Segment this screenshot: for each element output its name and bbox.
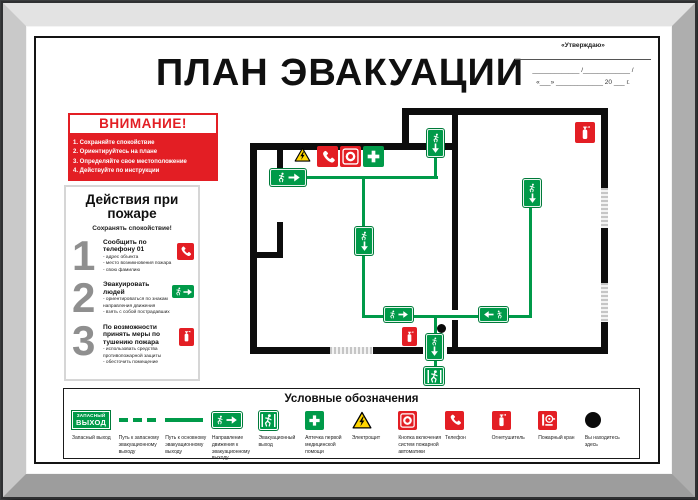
emergency-exit-sign: ЗАПАСНЫЙ ВЫХОД	[72, 411, 110, 429]
legend-item: Вы находитесь здесь	[585, 408, 631, 462]
legend-item: Огнетушитель	[492, 408, 538, 462]
approval-title: «Утверждаю»	[513, 42, 653, 49]
legend-item: Пожарный кран	[538, 408, 584, 462]
wall-divider	[452, 320, 458, 354]
phone-icon	[317, 146, 338, 167]
step-list-item: - использовать средства противопожарной …	[103, 347, 177, 360]
wall	[402, 108, 409, 150]
signature-line: _____________ /_____________ /	[513, 67, 653, 74]
evacuation-route	[529, 203, 532, 318]
fire-hydrant-icon	[538, 411, 557, 430]
legend-label: Запасный выход	[72, 435, 111, 442]
action-step-3: 3 По возможности принять меры по тушению…	[72, 324, 194, 367]
step-list-item: - обесточить помещение	[103, 360, 177, 366]
fire-alarm-button-icon	[398, 411, 417, 430]
window	[330, 347, 373, 354]
legend-item: Эвакуационный выход	[259, 408, 305, 462]
exit-down-sign	[426, 334, 443, 360]
step-list: - использовать средства противопожарной …	[103, 347, 177, 366]
step-list: - ориентироваться по знакам направления …	[103, 297, 170, 316]
exit-down-sign	[355, 227, 373, 255]
legend-label: Огнетушитель	[492, 435, 525, 442]
attention-list: 1. Сохраняйте спокойствие 2. Ориентируйт…	[68, 135, 218, 181]
window	[601, 188, 608, 228]
attention-box: ВНИМАНИЕ! 1. Сохраняйте спокойствие 2. О…	[68, 113, 218, 181]
legend-item: Электрощит	[352, 408, 398, 462]
floor-plan	[240, 100, 612, 400]
you-are-here-dot	[585, 412, 601, 428]
step-list: - адрес объекта - место возникновения по…	[103, 255, 175, 274]
exit-down-sign	[427, 129, 444, 157]
first-aid-icon	[305, 411, 324, 430]
legend-title: Условные обозначения	[64, 393, 639, 405]
you-are-here-dot	[437, 324, 446, 333]
date-line: «___» _____________ 20 ___ г.	[513, 79, 653, 86]
legend-item: Путь к основному эвакуационному выходу	[165, 408, 211, 462]
legend-label: Кнопка включения систем пожарной автомат…	[398, 435, 444, 455]
fire-extinguisher-icon	[402, 327, 417, 346]
legend-label: Путь к запасному эвакуационному выходу	[119, 435, 165, 455]
fire-actions-box: Действия при пожаре Сохранять спокойстви…	[64, 185, 200, 381]
page-title: ПЛАН ЭВАКУАЦИИ	[120, 52, 560, 95]
legend-label: Эвакуационный выход	[259, 435, 305, 449]
step-number: 1	[72, 239, 102, 273]
legend-label: Электрощит	[352, 435, 380, 442]
actions-title: Действия при пожаре	[66, 193, 198, 221]
step-list-item: - свою фамилию	[103, 268, 175, 274]
exit-direction-right-sign	[384, 307, 413, 322]
legend-label: Вы находитесь здесь	[585, 435, 631, 449]
legend-label: Пожарный кран	[538, 435, 574, 442]
exit-sign-line2: ВЫХОД	[76, 419, 106, 427]
exit-direction-left-sign	[479, 307, 508, 322]
exit-direction-icon	[172, 285, 194, 298]
electric-panel-icon	[352, 411, 372, 429]
phone-icon	[445, 411, 464, 430]
legend-label: Путь к основному эвакуационному выходу	[165, 435, 211, 455]
legend-box: Условные обозначения ЗАПАСНЫЙ ВЫХОД Запа…	[63, 388, 640, 459]
step-heading: Эвакуировать людей	[103, 281, 170, 296]
electric-panel-icon	[294, 147, 311, 162]
legend-item: Направление движения к эвакуационному вы…	[212, 408, 258, 462]
legend-label: Аптечка первой медицинской помощи	[305, 435, 351, 455]
step-list-item: - взять с собой пострадавших	[103, 310, 170, 316]
legend-item: ЗАПАСНЫЙ ВЫХОД Запасный выход	[72, 408, 118, 462]
step-list-item: - ориентироваться по знакам направления …	[103, 297, 170, 310]
signature-rule	[515, 54, 651, 60]
step-heading: По возможности принять меры по тушению п…	[103, 324, 177, 347]
fire-extinguisher-icon	[179, 328, 194, 346]
legend-row: ЗАПАСНЫЙ ВЫХОД Запасный выход Путь к зап…	[64, 405, 639, 462]
legend-item: Кнопка включения систем пожарной автомат…	[398, 408, 444, 462]
step-number: 3	[72, 324, 102, 358]
step-number: 2	[72, 281, 102, 315]
actions-subtitle: Сохранять спокойствие!	[66, 225, 198, 232]
wall	[402, 108, 608, 115]
attention-title: ВНИМАНИЕ!	[68, 113, 218, 135]
attention-item: 3. Определяйте свое местоположение	[73, 158, 213, 167]
emergency-exit-sign	[424, 367, 444, 385]
action-step-2: 2 Эвакуировать людей - ориентироваться п…	[72, 281, 194, 317]
exit-direction-right-sign	[270, 169, 306, 186]
evacuation-plan-poster: ПЛАН ЭВАКУАЦИИ «Утверждаю» _____________…	[34, 36, 660, 464]
wall	[250, 143, 257, 354]
fire-extinguisher-icon	[575, 122, 595, 143]
legend-item: Путь к запасному эвакуационному выходу	[119, 408, 165, 462]
step-heading: Сообщить по телефону 01	[103, 239, 175, 254]
first-aid-icon	[363, 146, 384, 167]
step-list-item: - место возникновения пожара	[103, 261, 175, 267]
attention-item: 1. Сохраняйте спокойствие	[73, 139, 213, 148]
wall-small-room	[250, 252, 283, 258]
attention-item: 2. Ориентируйтесь на плане	[73, 148, 213, 157]
exit-direction-sign	[212, 412, 242, 428]
approval-block: «Утверждаю» _____________ /_____________…	[513, 42, 653, 91]
window	[601, 283, 608, 322]
exit-down-sign	[523, 179, 541, 207]
legend-label: Телефон	[445, 435, 466, 442]
wall-divider	[452, 112, 458, 310]
solid-route-line	[165, 418, 203, 422]
evacuation-route	[434, 155, 437, 179]
legend-item: Аптечка первой медицинской помощи	[305, 408, 351, 462]
legend-item: Телефон	[445, 408, 491, 462]
dashed-route-line	[119, 418, 157, 422]
phone-icon	[177, 243, 194, 260]
legend-label: Направление движения к эвакуационному вы…	[212, 435, 258, 462]
action-step-1: 1 Сообщить по телефону 01 - адрес объект…	[72, 239, 194, 275]
evacuation-exit-sign	[259, 411, 278, 430]
fire-alarm-button-icon	[340, 146, 361, 167]
fire-extinguisher-icon	[492, 411, 511, 430]
attention-item: 4. Действуйте по инструкции	[73, 167, 213, 176]
